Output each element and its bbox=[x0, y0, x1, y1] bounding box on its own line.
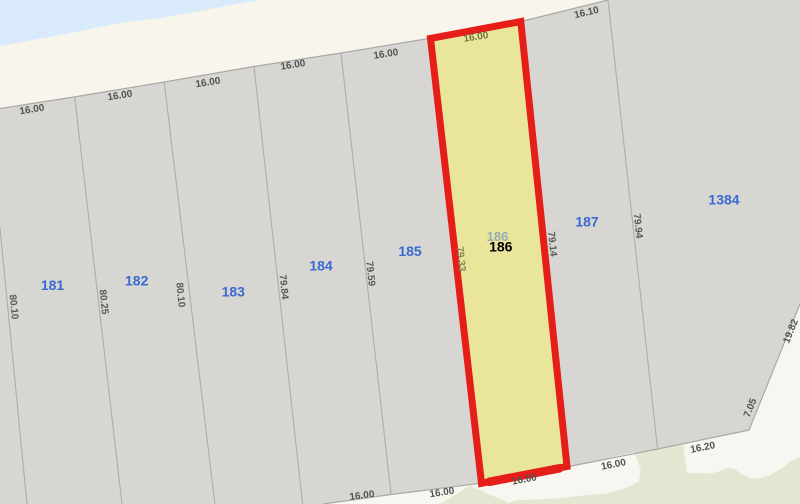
svg-text:181: 181 bbox=[41, 277, 65, 293]
svg-text:184: 184 bbox=[309, 258, 333, 274]
svg-text:182: 182 bbox=[125, 272, 149, 288]
svg-text:186: 186 bbox=[489, 239, 513, 255]
svg-text:185: 185 bbox=[398, 243, 422, 259]
svg-text:1384: 1384 bbox=[708, 192, 739, 208]
svg-text:187: 187 bbox=[575, 214, 599, 230]
svg-text:183: 183 bbox=[222, 283, 246, 299]
